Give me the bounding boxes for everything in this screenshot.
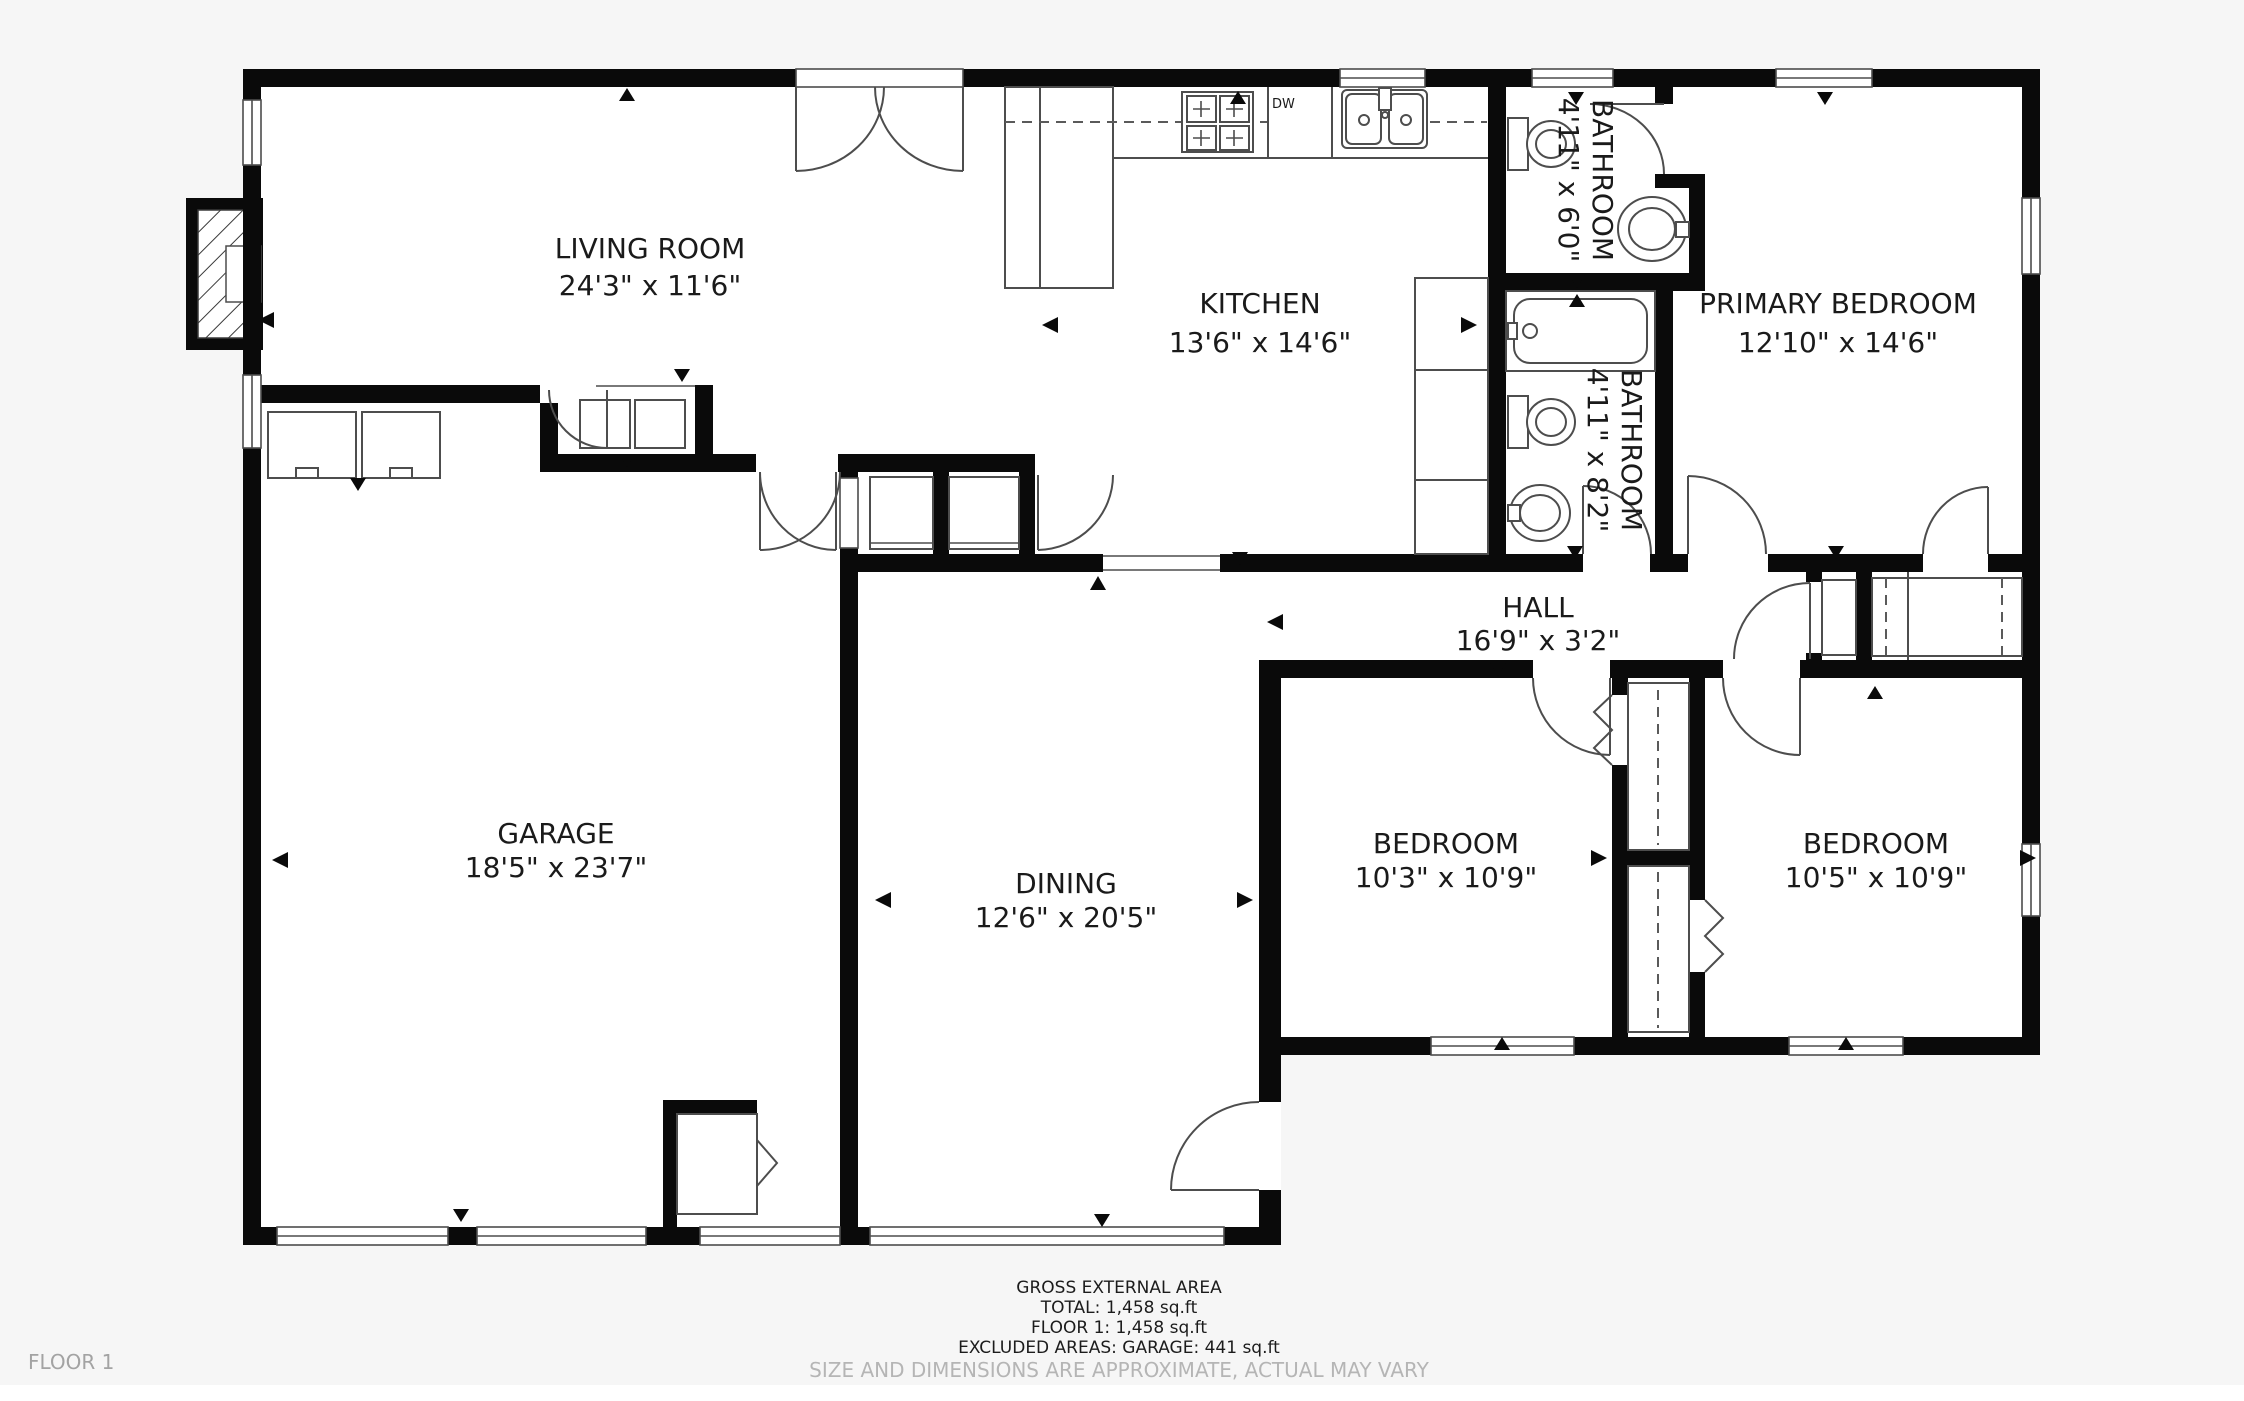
room-label-living-room: LIVING ROOM [555, 232, 746, 265]
room-dims-living-room: 24'3" x 11'6" [559, 269, 741, 302]
room-label-bathroom-top: BATHROOM [1586, 99, 1619, 261]
footer-total: TOTAL: 1,458 sq.ft [1040, 1298, 1198, 1318]
room-label-bedroom-right: BEDROOM [1803, 827, 1949, 860]
room-label-dining: DINING [1015, 867, 1117, 900]
sink-icon-bathroom-hall [1508, 485, 1570, 541]
garage-door-left [277, 1227, 448, 1245]
bottom-strip [0, 1385, 2244, 1401]
window-living-left-1 [243, 100, 261, 165]
room-label-group-bathroom-top: BATHROOM 4'11" x 6'0" [1552, 98, 1619, 263]
room-label-garage: GARAGE [497, 817, 614, 850]
room-dims-bedroom-right: 10'5" x 10'9" [1785, 861, 1967, 894]
window-bathroom-top [1532, 69, 1613, 87]
cased-opening-garage-entry [840, 478, 858, 548]
room-label-primary-bedroom: PRIMARY BEDROOM [1699, 287, 1977, 320]
footer-disclaimer: SIZE AND DIMENSIONS ARE APPROXIMATE, ACT… [809, 1358, 1429, 1382]
window-living-left-2 [243, 375, 261, 448]
double-sink-icon [1342, 88, 1427, 148]
room-dims-bathroom-hall: 4'11" x 8'2" [1581, 368, 1614, 533]
dishwasher-label: DW [1272, 97, 1295, 112]
footer-excluded: EXCLUDED AREAS: GARAGE: 441 sq.ft [958, 1338, 1280, 1358]
cased-opening-hall [1103, 554, 1220, 572]
room-dims-bathroom-top: 4'11" x 6'0" [1552, 98, 1585, 263]
room-dims-garage: 18'5" x 23'7" [465, 851, 647, 884]
window-dining-bottom [870, 1227, 1224, 1245]
footer-floor: FLOOR 1: 1,458 sq.ft [1031, 1318, 1207, 1338]
toilet-icon-bathroom-hall [1508, 396, 1575, 448]
kitchen-peninsula [1005, 87, 1113, 288]
window-kitchen [1340, 69, 1425, 87]
room-dims-dining: 12'6" x 20'5" [975, 901, 1157, 934]
room-dims-kitchen: 13'6" x 14'6" [1169, 326, 1351, 359]
front-door-opening [1259, 1102, 1281, 1190]
window-primary-bedroom-right [2022, 198, 2040, 274]
window-garage-bottom [700, 1227, 840, 1245]
room-label-group-bathroom-hall: BATHROOM 4'11" x 8'2" [1581, 368, 1648, 533]
room-dims-bedroom-left: 10'3" x 10'9" [1355, 861, 1537, 894]
footer-title: GROSS EXTERNAL AREA [1016, 1278, 1222, 1298]
window-primary-bedroom-top [1776, 69, 1872, 87]
room-label-bedroom-left: BEDROOM [1373, 827, 1519, 860]
room-label-hall: HALL [1502, 591, 1574, 624]
kitchen-counter-right [1415, 278, 1488, 554]
garage-door-right [477, 1227, 646, 1245]
room-dims-hall: 16'9" x 3'2" [1456, 624, 1621, 657]
floorplan-page: LIVING ROOM 24'3" x 11'6" KITCHEN 13'6" … [0, 0, 2244, 1401]
floor-plan-canvas: LIVING ROOM 24'3" x 11'6" KITCHEN 13'6" … [0, 0, 2244, 1401]
floor-number-label: FLOOR 1 [28, 1350, 114, 1374]
room-label-bathroom-hall: BATHROOM [1615, 369, 1648, 531]
room-dims-primary-bedroom: 12'10" x 14'6" [1738, 326, 1938, 359]
room-label-kitchen: KITCHEN [1199, 287, 1320, 320]
